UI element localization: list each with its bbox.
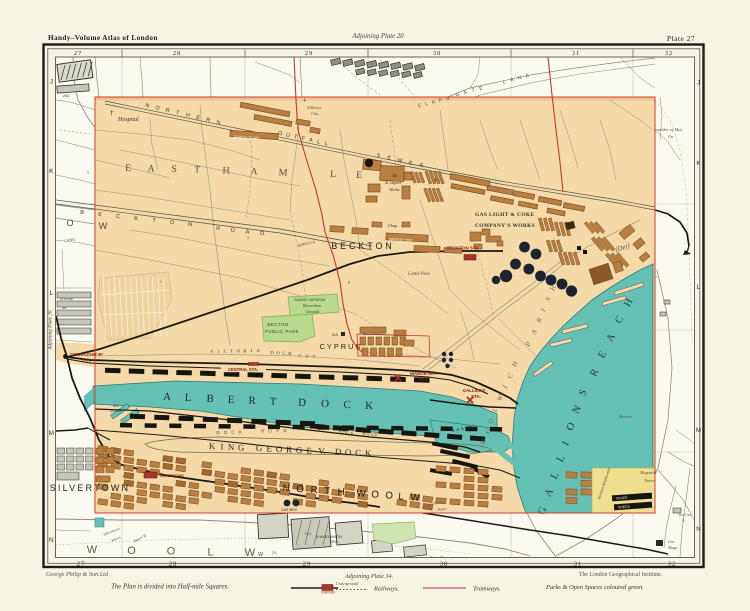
svg-text:W: W: [356, 488, 366, 499]
svg-text:STA.: STA.: [82, 358, 91, 363]
svg-text:C: C: [355, 447, 361, 457]
svg-text:D: D: [283, 428, 286, 433]
svg-text:D: D: [298, 397, 306, 409]
svg-text:Gn: Gn: [668, 134, 673, 139]
svg-text:Adjoining Plate 26: Adjoining Plate 26: [47, 310, 53, 351]
svg-text:BEACONSFIELD: BEACONSFIELD: [363, 332, 385, 336]
svg-text:BECTON: BECTON: [267, 322, 288, 327]
svg-text:G: G: [256, 443, 263, 453]
svg-text:+: +: [303, 98, 307, 104]
svg-text:C: C: [231, 430, 234, 435]
svg-text:C: C: [282, 351, 285, 356]
svg-text:Magazine: Magazine: [639, 470, 657, 475]
svg-text:29: 29: [303, 561, 312, 568]
svg-text:32: 32: [668, 561, 677, 568]
svg-text:5: 5: [87, 170, 89, 175]
svg-text:CENTRAL STA.: CENTRAL STA.: [228, 367, 258, 372]
svg-text:D: D: [374, 432, 377, 437]
svg-text:29: 29: [305, 50, 314, 57]
svg-text:8: 8: [348, 280, 350, 285]
svg-text:O: O: [385, 490, 393, 501]
svg-text:7: 7: [247, 236, 249, 241]
svg-text:SᵗMarys: SᵗMarys: [307, 105, 321, 110]
svg-text:N: N: [282, 483, 289, 494]
svg-text:J: J: [697, 80, 700, 87]
svg-text:L: L: [50, 290, 54, 297]
svg-text:T: T: [324, 486, 330, 497]
svg-text:Maga: Maga: [667, 545, 677, 550]
svg-text:O: O: [345, 447, 352, 457]
svg-text:CONNAUGHT Rᵈ: CONNAUGHT Rᵈ: [70, 352, 103, 357]
svg-text:CYPRUS: CYPRUS: [320, 342, 363, 351]
svg-text:SILVERTOWN: SILVERTOWN: [50, 483, 131, 493]
svg-text:w: w: [257, 551, 264, 558]
svg-text:31: 31: [574, 561, 583, 568]
svg-text:†: †: [110, 109, 114, 117]
svg-text:O: O: [167, 546, 176, 558]
svg-text:C: C: [224, 349, 227, 354]
svg-text:31: 31: [572, 50, 581, 57]
svg-text:K: K: [209, 441, 216, 451]
svg-text:K: K: [696, 160, 701, 167]
svg-text:BECKTON: BECKTON: [331, 241, 394, 251]
svg-text:Shoulder of Mut: Shoulder of Mut: [652, 127, 683, 132]
svg-text:O: O: [321, 398, 329, 410]
svg-text:C: C: [116, 214, 120, 220]
svg-text:Underground: Underground: [336, 581, 359, 586]
svg-text:O: O: [66, 218, 73, 228]
svg-text:W: W: [410, 492, 420, 503]
svg-text:K: K: [365, 448, 372, 458]
svg-text:Handy–Volume Atlas of Londo: Handy–Volume Atlas of London: [48, 34, 158, 42]
svg-text:A: A: [245, 229, 249, 235]
svg-text:28: 28: [169, 561, 178, 568]
svg-text:28: 28: [173, 50, 182, 57]
svg-text:30: 30: [433, 50, 442, 57]
svg-text:E: E: [228, 394, 235, 406]
svg-text:STATION: STATION: [321, 591, 335, 595]
svg-text:32: 32: [665, 50, 674, 57]
svg-text:D: D: [216, 430, 219, 435]
svg-text:The London Geographical Instit: The London Geographical Institute.: [579, 572, 663, 578]
svg-text:L: L: [330, 169, 336, 180]
svg-text:D: D: [260, 231, 264, 237]
svg-text:E: E: [98, 212, 102, 218]
svg-text:G: G: [296, 445, 303, 455]
svg-text:Chu.: Chu.: [311, 111, 319, 116]
svg-text:Plate 27: Plate 27: [667, 34, 695, 43]
svg-text:30: 30: [440, 561, 449, 568]
svg-text:Chap.: Chap.: [388, 223, 398, 228]
svg-text:R: R: [286, 444, 292, 454]
svg-text:O: O: [371, 489, 379, 500]
svg-text:N: N: [188, 222, 192, 228]
svg-text:Works: Works: [389, 187, 400, 192]
svg-text:W: W: [87, 544, 98, 556]
svg-text:M: M: [696, 427, 701, 434]
svg-text:K: K: [134, 216, 138, 222]
svg-text:STA.: STA.: [471, 394, 481, 399]
svg-text:N: N: [228, 442, 235, 452]
svg-text:Tow Gut: Tow Gut: [678, 513, 692, 517]
svg-text:T: T: [230, 349, 233, 354]
svg-text:S: S: [171, 164, 177, 175]
svg-text:George Philip & Son.Ltd: George Philip & Son.Ltd: [46, 571, 109, 578]
svg-text:R: R: [261, 429, 264, 434]
svg-text:M: M: [49, 430, 54, 437]
svg-text:Hospital: Hospital: [117, 117, 139, 123]
svg-text:C: C: [343, 399, 351, 411]
svg-text:Beacon: Beacon: [619, 414, 633, 419]
svg-text:Tramways.: Tramways.: [473, 586, 501, 593]
svg-text:COMPANY'S WORKS: COMPANY'S WORKS: [475, 223, 535, 229]
svg-text:& Liquor: & Liquor: [385, 180, 402, 185]
svg-text:T: T: [194, 164, 200, 175]
svg-text:B: B: [206, 393, 214, 405]
svg-text:A: A: [163, 391, 171, 403]
svg-text:O: O: [296, 484, 304, 495]
svg-text:AL ROAD: AL ROAD: [60, 297, 74, 301]
svg-text:W: W: [99, 221, 108, 231]
svg-text:27: 27: [74, 50, 83, 57]
svg-text:R: R: [310, 485, 317, 496]
svg-text:GALLIONS: GALLIONS: [463, 388, 486, 393]
svg-text:Adjoining Plate 20: Adjoining Plate 20: [351, 33, 404, 40]
svg-text:A: A: [147, 163, 155, 174]
svg-text:T: T: [270, 396, 277, 408]
svg-text:Adjoining Plate 34.: Adjoining Plate 34.: [344, 573, 393, 580]
svg-text:STA.: STA.: [419, 377, 429, 382]
svg-text:A: A: [250, 166, 258, 177]
svg-text:O: O: [268, 428, 272, 433]
svg-text:K: K: [239, 429, 242, 434]
svg-text:27: 27: [77, 561, 86, 568]
svg-text:Recreation: Recreation: [302, 303, 321, 308]
svg-text:A: A: [371, 432, 374, 437]
svg-text:N: N: [49, 537, 54, 544]
svg-text:Parks & Open Spaces coloured g: Parks & Open Spaces coloured green.: [545, 584, 644, 591]
svg-text:SAVAGE GARDENS: SAVAGE GARDENS: [294, 298, 326, 302]
svg-text:DRY: DRY: [113, 404, 121, 408]
svg-text:K: K: [49, 168, 54, 175]
svg-text:I: I: [220, 441, 223, 451]
svg-text:PUBLIC PARK: PUBLIC PARK: [265, 329, 299, 334]
svg-text:Gnr: Gnr: [668, 539, 675, 544]
svg-text:O: O: [127, 545, 136, 557]
svg-text:Tavern: Tavern: [644, 478, 655, 483]
svg-text:Ground: Ground: [306, 309, 320, 314]
svg-text:R: R: [216, 226, 220, 232]
svg-text:J: J: [50, 79, 53, 86]
svg-text:Cattle Pens: Cattle Pens: [408, 272, 430, 277]
svg-text:D: D: [335, 446, 342, 456]
svg-text:L: L: [207, 546, 213, 558]
svg-text:V.: V.: [318, 446, 326, 456]
svg-text:E: E: [356, 170, 362, 181]
svg-text:L: L: [185, 392, 192, 404]
svg-text:Tar: Tar: [392, 173, 398, 178]
svg-text:K: K: [365, 400, 373, 412]
svg-text:R: R: [248, 395, 256, 407]
svg-text:H: H: [222, 165, 230, 176]
svg-text:BECKTON STA: BECKTON STA: [447, 246, 479, 251]
svg-text:2XD: 2XD: [63, 94, 70, 98]
svg-text:Sch.: Sch.: [332, 333, 338, 337]
svg-text:O: O: [276, 444, 283, 454]
svg-text:E: E: [125, 163, 131, 174]
svg-text:BLACK: BLACK: [616, 496, 628, 501]
svg-text:2¼: 2¼: [272, 551, 277, 555]
svg-text:Railways.: Railways.: [373, 586, 399, 593]
svg-text:C: C: [298, 353, 301, 358]
svg-text:The Plan is divided into Half-: The Plan is divided into Half-mile Squar…: [111, 584, 229, 591]
svg-text:T: T: [313, 354, 316, 359]
svg-text:O: O: [224, 430, 228, 435]
svg-text:B: B: [80, 210, 84, 216]
svg-text:G: G: [238, 442, 245, 452]
svg-text:GAS WKS: GAS WKS: [281, 508, 298, 512]
svg-text:GAS LIGHT & COKE: GAS LIGHT & COKE: [475, 212, 534, 218]
svg-text:M: M: [278, 167, 287, 178]
svg-text:Det: Det: [304, 531, 312, 536]
svg-text:H: H: [337, 487, 344, 498]
svg-text:E: E: [306, 445, 312, 455]
svg-text:N: N: [696, 526, 701, 533]
svg-text:STA.: STA.: [330, 539, 339, 544]
svg-text:L: L: [398, 491, 404, 502]
svg-text:Sᵗ: Sᵗ: [682, 519, 685, 523]
svg-text:E: E: [266, 443, 272, 453]
svg-text:MANOR WAY: MANOR WAY: [410, 371, 437, 376]
svg-text:L: L: [697, 284, 701, 291]
svg-text:SILVERTOWN: SILVERTOWN: [160, 474, 184, 478]
